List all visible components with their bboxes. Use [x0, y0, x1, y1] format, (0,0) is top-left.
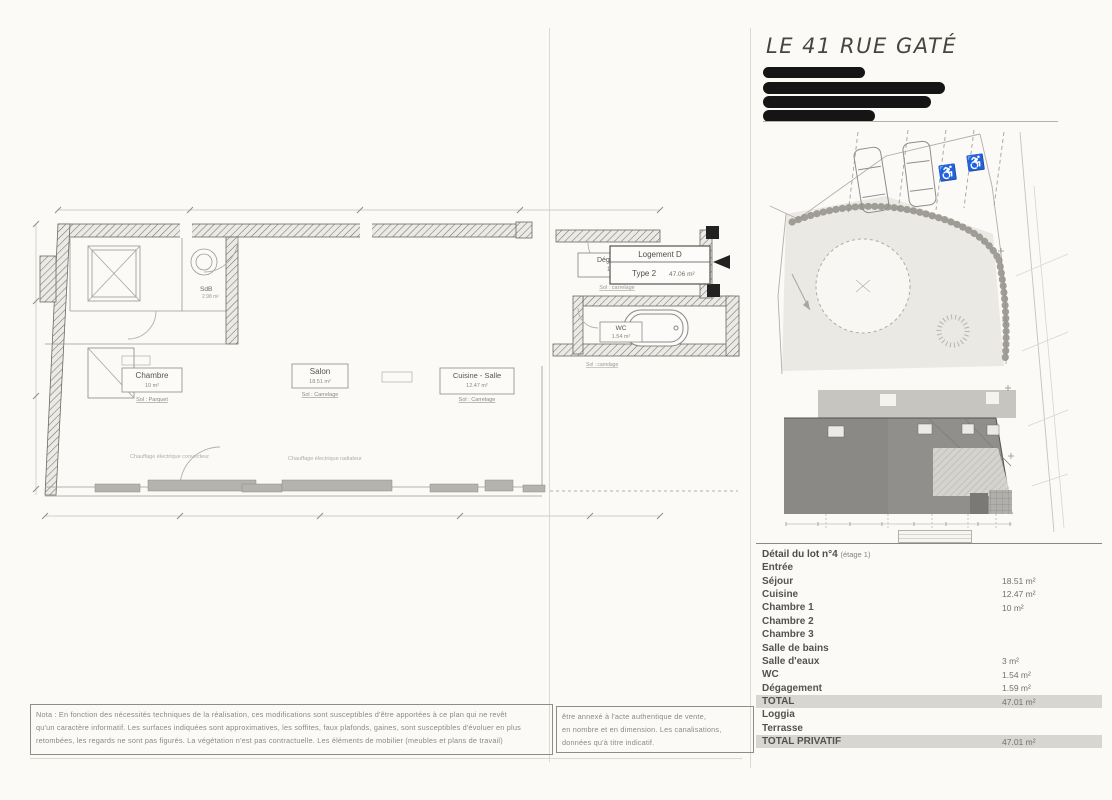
table-row: Dégagement1.59 m² — [756, 682, 1102, 695]
dimension-lines — [33, 207, 663, 519]
table-row: Chambre 110 m² — [756, 601, 1102, 614]
svg-text:Sol : Parquet: Sol : Parquet — [136, 397, 168, 403]
table-row: Terrasse — [756, 722, 1102, 735]
handicap-parking-icon: ♿ — [937, 163, 958, 183]
svg-text:10 m²: 10 m² — [145, 383, 159, 389]
heating-annotation: Chauffage électrique convecteur — [130, 454, 209, 460]
svg-text:Cuisine - Salle: Cuisine - Salle — [453, 371, 501, 380]
svg-text:Chambre: Chambre — [136, 371, 169, 380]
tree — [816, 239, 910, 333]
table-row: Salle de bains — [756, 641, 1102, 654]
door-arcs — [128, 238, 618, 487]
svg-text:Logement D: Logement D — [638, 250, 682, 259]
row-label: Chambre 3 — [762, 629, 1002, 640]
redaction-bar — [763, 96, 931, 108]
note-left: Nota : En fonction des nécessités techni… — [30, 704, 553, 755]
row-label: Chambre 2 — [762, 616, 1002, 627]
lot-detail-table: Détail du lot n°4 (étage 1) EntréeSéjour… — [756, 543, 1102, 748]
site-plan-caption-box — [898, 530, 972, 543]
svg-text:WC: WC — [616, 325, 627, 332]
room-label-cuisine: Cuisine - Salle 12.47 m² Sol : Carrelage — [440, 368, 514, 403]
row-label: Séjour — [762, 576, 1002, 587]
table-row: Chambre 2 — [756, 615, 1102, 628]
page-bottom-line — [30, 758, 742, 759]
row-label: Chambre 1 — [762, 602, 1002, 613]
note-line: données qu'à titre indicatif. — [562, 736, 748, 749]
note-line: être annexé à l'acte authentique de vent… — [562, 710, 748, 723]
table-title-text: Détail du lot n°4 — [762, 549, 838, 560]
table-row: Cuisine12.47 m² — [756, 588, 1102, 601]
row-value: 47.01 m² — [1002, 737, 1096, 747]
row-value: 10 m² — [1002, 603, 1096, 613]
room-label-chambre: Chambre 10 m² Sol : Parquet — [122, 356, 182, 403]
paved-area — [989, 490, 1012, 514]
table-title: Détail du lot n°4 (étage 1) — [756, 547, 1102, 561]
table-row: Chambre 3 — [756, 628, 1102, 641]
row-value: 12.47 m² — [1002, 589, 1096, 599]
table-row: WC1.54 m² — [756, 668, 1102, 681]
page-fold-line — [750, 28, 751, 768]
note-line: Nota : En fonction des nécessités techni… — [36, 708, 547, 721]
row-value: 1.59 m² — [1002, 683, 1096, 693]
row-label: TOTAL — [762, 696, 1002, 707]
svg-text:Sol : carrelage: Sol : carrelage — [599, 285, 634, 291]
svg-text:Salon: Salon — [310, 367, 330, 376]
address-underline — [763, 121, 1058, 122]
scanned-floor-plan-document: { "page": { "title": "LE 41 RUE GATÉ" },… — [0, 0, 1112, 800]
room-label-salon: Salon 18.51 m² Sol : Carrelage — [292, 364, 412, 398]
redaction-bar — [763, 67, 865, 78]
site-dimension-ticks — [786, 514, 1012, 528]
svg-text:2.98 m²: 2.98 m² — [202, 294, 219, 300]
row-label: WC — [762, 669, 1002, 680]
table-row: TOTAL PRIVATIF47.01 m² — [756, 735, 1102, 748]
row-label: Cuisine — [762, 589, 1002, 600]
row-value: 18.51 m² — [1002, 576, 1096, 586]
svg-text:Sol : Carrelage: Sol : Carrelage — [459, 397, 496, 403]
windows — [95, 480, 545, 492]
row-label: Loggia — [762, 709, 1002, 720]
svg-text:Sol : carrelage: Sol : carrelage — [586, 362, 618, 368]
note-line: retombées, les regards ne sont pas figur… — [36, 734, 547, 747]
svg-text:18.51 m²: 18.51 m² — [309, 379, 331, 385]
svg-text:SdB: SdB — [200, 286, 212, 293]
room-label-sdb: SdB 2.98 m² — [200, 286, 219, 300]
redaction-bar — [763, 82, 945, 94]
row-label: Dégagement — [762, 683, 1002, 694]
wall-opening — [180, 222, 192, 239]
row-label: Entrée — [762, 562, 1002, 573]
row-value: 47.01 m² — [1002, 697, 1096, 707]
svg-text:47.06 m²: 47.06 m² — [669, 271, 695, 278]
handicap-parking-icon: ♿ — [965, 153, 986, 173]
svg-text:Sol : Carrelage: Sol : Carrelage — [302, 392, 339, 398]
row-value: 1.54 m² — [1002, 670, 1096, 680]
note-right: être annexé à l'acte authentique de vent… — [556, 706, 754, 753]
lot-label-box: Logement D Type 2 47.06 m² — [610, 246, 710, 284]
svg-text:1.54 m²: 1.54 m² — [612, 334, 631, 340]
table-row: Loggia — [756, 708, 1102, 721]
row-label: TOTAL PRIVATIF — [762, 736, 1002, 747]
table-row: Entrée — [756, 561, 1102, 574]
detail-table-rows: EntréeSéjour18.51 m²Cuisine12.47 m²Chamb… — [756, 561, 1102, 748]
floor-plan-drawing: Chauffage électrique convecteur Chauffag… — [30, 196, 748, 546]
site-plan-drawing: ♿ ♿ — [768, 126, 1068, 538]
table-row: Séjour18.51 m² — [756, 574, 1102, 587]
svg-text:Type 2: Type 2 — [632, 269, 657, 278]
heating-annotation: Chauffage électrique radiateur — [288, 456, 362, 462]
document-title: LE 41 RUE GATÉ — [766, 34, 957, 58]
roof-hatched-area — [933, 448, 1011, 496]
building-footprint — [784, 390, 1016, 514]
table-row: TOTAL47.01 m² — [756, 695, 1102, 708]
table-title-suffix: (étage 1) — [840, 550, 870, 559]
row-label: Terrasse — [762, 723, 1002, 734]
note-line: en nombre et en dimension. Les canalisat… — [562, 723, 748, 736]
entry-arrow-icon — [713, 255, 730, 269]
table-row: Salle d'eaux3 m² — [756, 655, 1102, 668]
svg-text:12.47 m²: 12.47 m² — [466, 383, 488, 389]
note-line: qu'un caractère informatif. Les surfaces… — [36, 721, 547, 734]
row-value: 3 m² — [1002, 656, 1096, 666]
row-label: Salle de bains — [762, 643, 1002, 654]
wall-opening — [360, 222, 372, 239]
row-label: Salle d'eaux — [762, 656, 1002, 667]
